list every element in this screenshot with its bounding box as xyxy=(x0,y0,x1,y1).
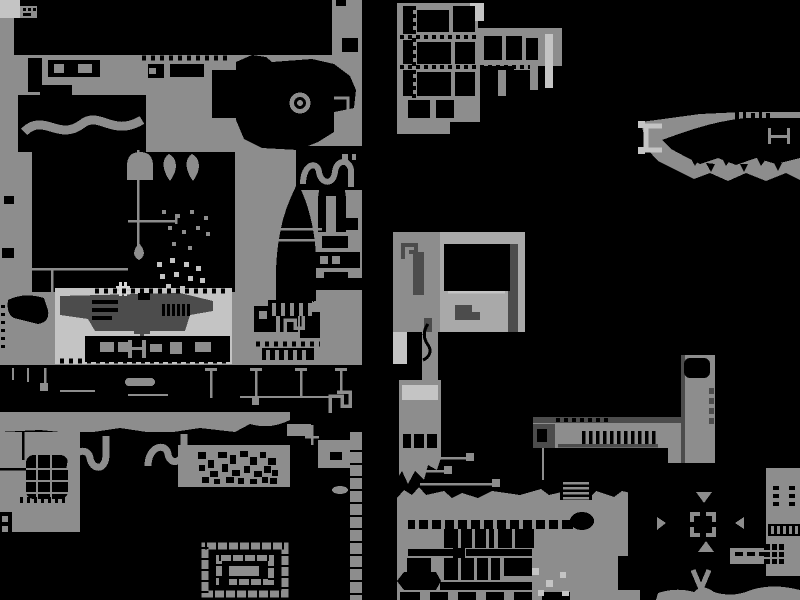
shaft-pod xyxy=(332,486,348,494)
hex-bunker xyxy=(397,572,441,590)
band-capsule xyxy=(125,378,155,386)
world-map-canvas xyxy=(0,0,800,600)
wire-band-void xyxy=(0,365,362,412)
hopper-slot xyxy=(537,429,547,442)
tower-cap xyxy=(402,385,438,400)
light-corner-patch xyxy=(0,0,20,18)
light-ledge xyxy=(393,332,407,364)
shaft-pocket xyxy=(684,358,710,378)
conveyor-corridor xyxy=(533,420,683,448)
arena-void-lower xyxy=(618,556,662,590)
spiral-gap xyxy=(219,576,229,586)
dark-duct xyxy=(413,252,424,295)
tower-cells xyxy=(403,434,437,448)
conveyor-skirt xyxy=(558,444,658,448)
signal-dashes xyxy=(735,552,767,556)
region-southwest-caves xyxy=(0,365,362,600)
chamber-void xyxy=(444,244,510,291)
spiral-core xyxy=(229,566,259,576)
chamber-light-sill xyxy=(448,291,505,294)
landing-notch xyxy=(330,452,342,460)
arch-doorway xyxy=(127,152,153,180)
game-map-viewport[interactable] xyxy=(0,0,800,600)
grid-hatch-box xyxy=(764,544,784,564)
pond-void xyxy=(570,512,594,530)
ring-landmark-core xyxy=(297,100,303,106)
bottom-void xyxy=(0,532,180,600)
room-pillar xyxy=(498,70,506,96)
arch-inner xyxy=(326,196,336,232)
